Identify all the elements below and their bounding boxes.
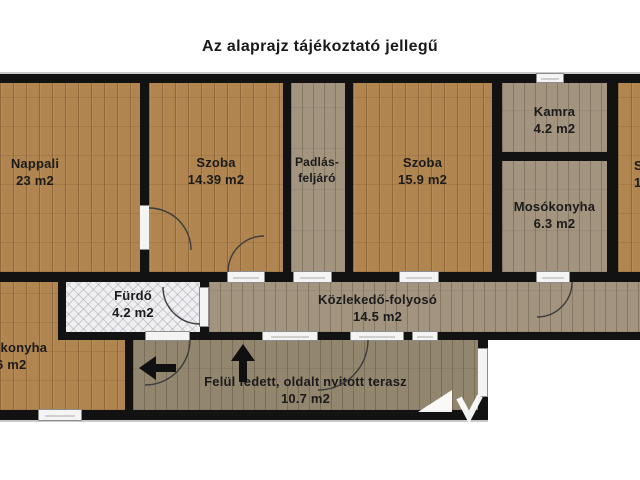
window-konyha-bottom	[38, 409, 82, 421]
door-szoba2-corridor	[399, 271, 439, 283]
padlas-label: Padlás-feljáró	[287, 155, 347, 186]
wall-nappali-szoba1	[140, 74, 149, 282]
szoba2-label: Szoba15.9 m2	[353, 155, 492, 189]
szoba-partial-label: S1	[634, 158, 640, 192]
konyha-partial-label: -konyha6 m2	[0, 340, 116, 374]
furdo-label: Fürdő4.2 m2	[66, 288, 200, 322]
door-padlas-corridor	[293, 271, 332, 283]
kozlekedo-label: Közlekedő-folyosó14.5 m2	[215, 292, 540, 326]
plan-title: Az alaprajz tájékoztató jellegű	[0, 38, 640, 56]
door-furdo-terasz	[145, 331, 190, 341]
wall-kamra-mosokonyha	[502, 152, 607, 161]
terasz-label: Felül fedett, oldalt nyitott terasz10.7 …	[133, 374, 478, 408]
wall-szoba2-kamra	[492, 74, 502, 282]
kamra-label: Kamra4.2 m2	[502, 104, 607, 138]
szoba1-label: Szoba14.39 m2	[149, 155, 283, 189]
mosokonyha-label: Mosókonyha6.3 m2	[498, 199, 611, 233]
door-nappali-szoba1	[139, 205, 150, 250]
door-corridor-terasz	[262, 331, 318, 341]
door-furdo-corridor	[199, 287, 209, 327]
window-corridor-terasz-1	[350, 331, 404, 341]
floor-plan: Az alaprajz tájékoztató jellegű Nappali2…	[0, 0, 640, 480]
door-mosokonyha-corridor	[536, 271, 570, 283]
wall-kamra-szoba-partial	[607, 74, 618, 282]
window-kamra-top	[536, 73, 564, 83]
wall-konyha-terasz	[125, 340, 133, 420]
window-terasz-right	[477, 348, 488, 397]
door-szoba1-corridor	[227, 271, 265, 283]
nappali-label: Nappali23 m2	[0, 156, 100, 190]
window-corridor-terasz-2	[412, 331, 438, 341]
